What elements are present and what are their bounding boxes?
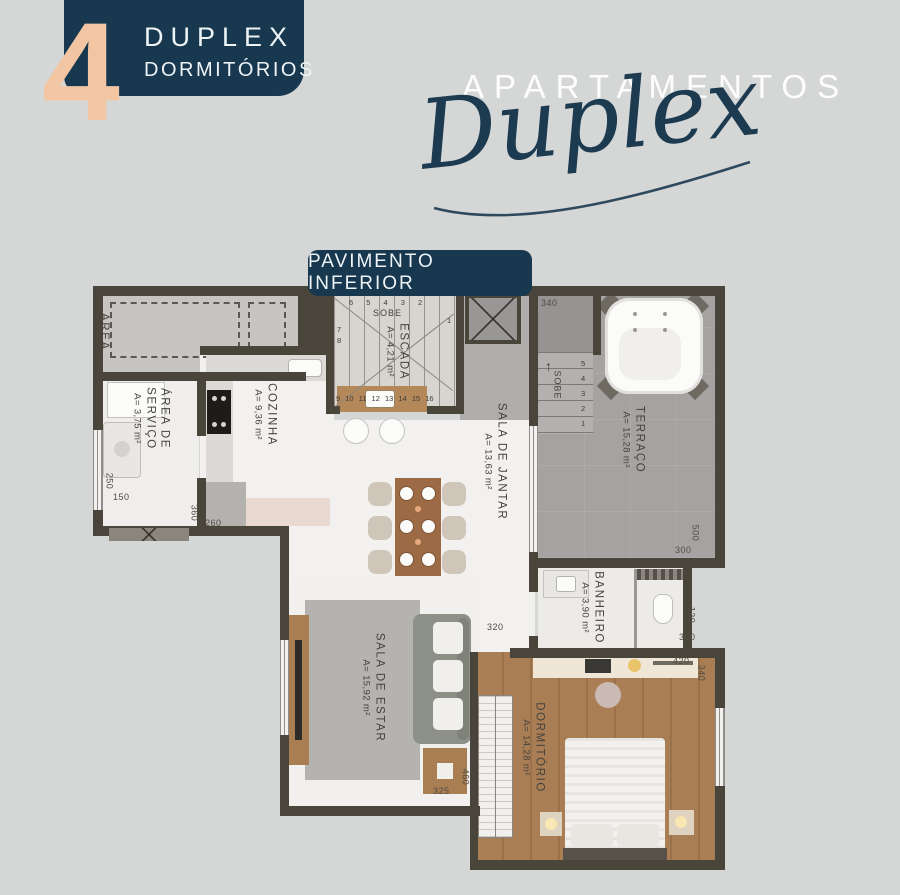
wall-terrace-east — [715, 286, 725, 568]
tv-screen — [295, 640, 302, 740]
wall-bedroom-bottom — [470, 860, 725, 870]
dining-chair-6 — [442, 550, 466, 574]
floorplan-page: DUPLEX DORMITÓRIOS 4 APARTAMENTOS Duplex… — [0, 0, 900, 895]
wall-bath-bedroom — [510, 648, 725, 658]
desk-lamp — [628, 659, 641, 672]
island-stool-1 — [343, 418, 369, 444]
wall-stair-bottom-a — [326, 406, 340, 414]
dim-living-460: 460 — [460, 769, 470, 786]
terrace-sobe-label: SOBE — [553, 370, 563, 399]
shower-head-wall — [637, 569, 683, 580]
bed-pillow-2 — [617, 824, 659, 846]
dining-chair-5 — [442, 516, 466, 540]
jacuzzi — [605, 298, 703, 394]
nightstand-lamp-left — [545, 818, 557, 830]
dining-chair-4 — [442, 482, 466, 506]
badge-line2: DORMITÓRIOS — [144, 59, 304, 82]
dim-bath-300: 300 — [679, 632, 696, 642]
room-label-dormitorio: DORMITÓRIO A= 14,28 m² — [520, 693, 545, 803]
dim-service-150: 150 — [113, 492, 130, 502]
dining-table — [395, 478, 441, 576]
terrace-stair-numbers: 5 4 3 2 1 — [581, 356, 589, 431]
dim-bath-130: 130 — [686, 607, 696, 624]
stair-steps-left: 7 8 — [337, 324, 345, 346]
wall-living-bottom — [280, 806, 480, 816]
wall-bath-west-lower — [529, 636, 538, 650]
nightstand-left — [540, 812, 562, 836]
room-label-area-servico: ÁREA DE SERVIÇO A= 3,75 m² — [132, 379, 171, 457]
cooktop — [207, 390, 231, 434]
stair-steps-right: 1 — [447, 316, 451, 325]
room-label-banheiro: BANHEIRO A= 3,90 m² — [579, 569, 604, 647]
dim-terrace-300: 300 — [675, 545, 692, 555]
stair-steps-bottom: 9 10 11 12 13 14 15 16 — [336, 394, 434, 403]
wall-bedroom-west — [470, 652, 478, 870]
nightstand-right — [669, 810, 694, 835]
bed-pillow-1 — [571, 824, 613, 846]
wall-lobby-terrace — [529, 286, 538, 426]
wall-terrace-landing — [593, 287, 601, 355]
sofa — [413, 614, 471, 744]
sofa-pillow-3 — [433, 698, 463, 730]
dim-hall-320: 320 — [487, 622, 504, 632]
room-label-cozinha: COZINHA A= 9,36 m² — [252, 370, 277, 460]
sofa-pillow-1 — [433, 622, 463, 654]
dim-kitchen-360: 360 — [189, 505, 199, 522]
dim-kitchen-260: 260 — [205, 518, 222, 528]
dining-chair-2 — [368, 516, 392, 540]
island-stool-2 — [379, 418, 405, 444]
terrace-stair-arrow: ↑ — [545, 358, 552, 374]
dim-terrace-top: 340 — [541, 298, 558, 308]
wall-terrace-bottom — [529, 558, 725, 568]
elevator-shaft — [465, 294, 521, 344]
wall-stair-bottom-b — [427, 406, 464, 414]
room-label-sala-estar: SALA DE ESTAR A= 15,92 m² — [360, 630, 385, 746]
toilet — [653, 594, 673, 624]
wardrobe — [478, 695, 513, 838]
floor-level-badge: PAVIMENTO INFERIOR — [308, 250, 532, 296]
dim-bedroom-340: 340 — [696, 665, 706, 682]
dining-chair-1 — [368, 482, 392, 506]
floor-plan: 6 5 4 3 2 7 8 9 10 11 12 13 14 15 16 1 S… — [85, 280, 733, 880]
floor-level-label: PAVIMENTO INFERIOR — [308, 251, 532, 295]
dim-bedroom-420: 420 — [673, 656, 690, 666]
unit-count-number: 4 — [42, 8, 120, 137]
desk-stool — [595, 682, 621, 708]
dim-terrace-500: 500 — [690, 525, 700, 542]
nightstand-lamp-right — [675, 816, 687, 828]
bedroom-window — [715, 708, 725, 786]
dim-service-250: 250 — [104, 473, 114, 490]
shower-glass — [634, 569, 637, 649]
bed-headboard — [563, 848, 667, 860]
sofa-pillow-2 — [433, 660, 463, 692]
living-window — [280, 640, 289, 735]
dim-living-325: 325 — [433, 786, 450, 796]
terrace-slider-door — [529, 426, 538, 552]
dining-chair-3 — [368, 550, 392, 574]
wall-stair-lobby — [456, 286, 464, 412]
room-label-sala-jantar: SALA DE JANTAR A= 13,63 m² — [482, 398, 507, 526]
wall-service-kitchen-a — [197, 381, 206, 436]
bed — [565, 738, 665, 860]
wall-bath-west-upper — [529, 552, 538, 592]
stair-steps-top: 6 5 4 3 2 — [349, 298, 422, 307]
desk-laptop — [585, 659, 611, 673]
wall-kitchen-top — [200, 346, 334, 355]
service-window — [93, 430, 103, 510]
service-vent-window — [109, 528, 189, 541]
room-label-area: ÁREA — [96, 310, 110, 354]
badge-line1: DUPLEX — [144, 22, 304, 53]
room-label-terraco: TERRAÇO A= 15,28 m² — [620, 392, 645, 488]
kitchen-counter-bottom — [246, 498, 330, 526]
room-label-escada: ESCADA A= 4,21 m² — [384, 310, 409, 394]
